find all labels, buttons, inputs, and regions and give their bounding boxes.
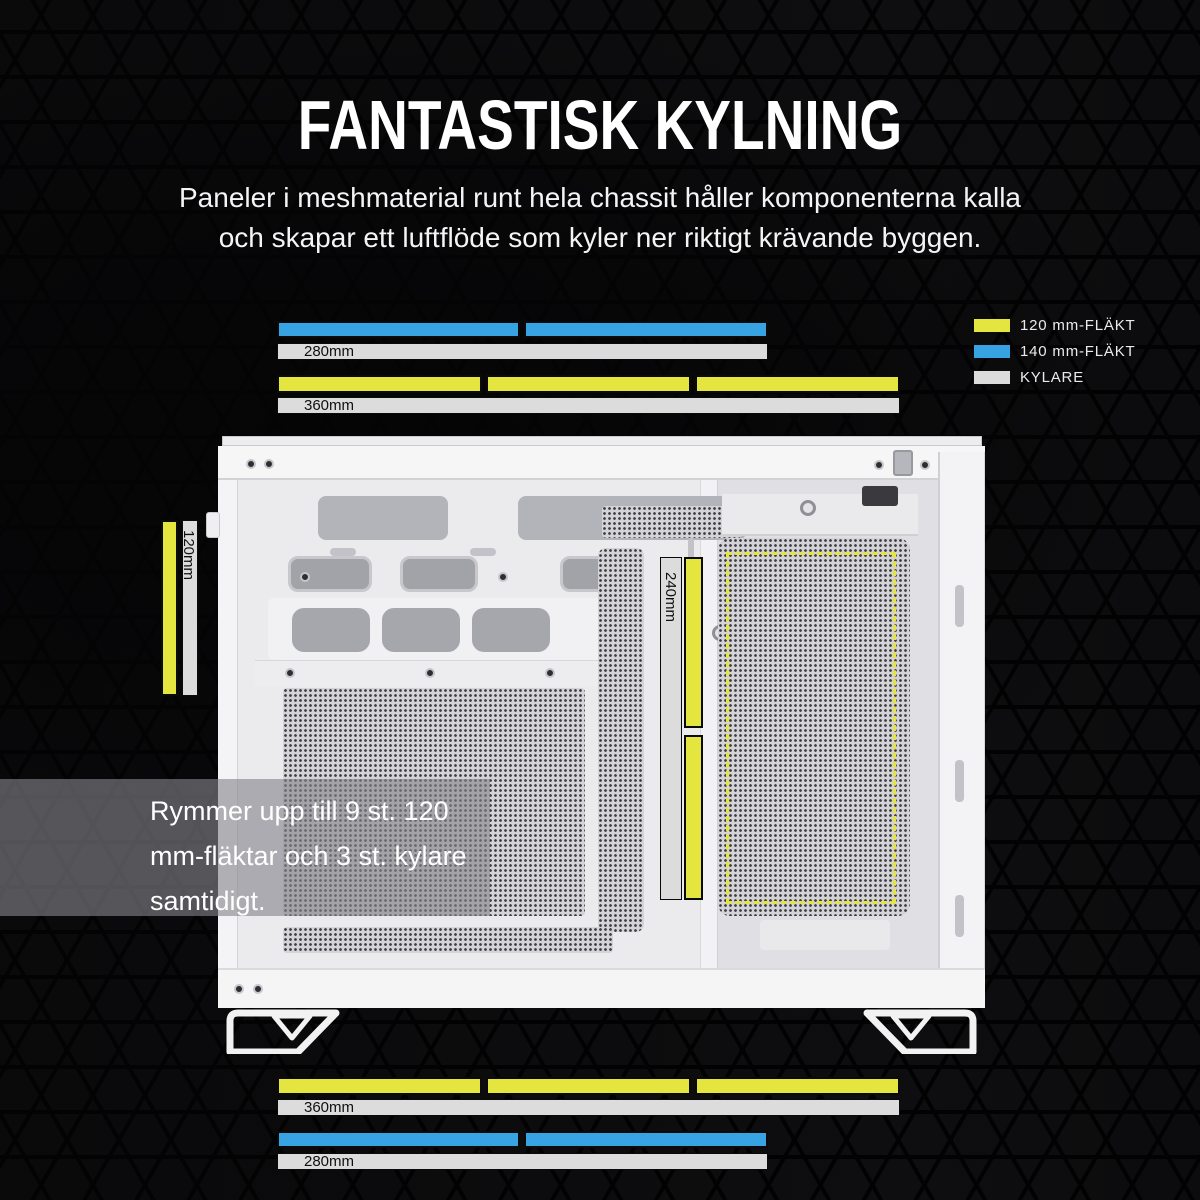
- case-top-frame: [218, 446, 985, 480]
- shroud-cutout: [292, 608, 370, 652]
- fan-120-swatch: [973, 318, 1011, 333]
- fan-120-segment: [277, 375, 482, 393]
- fan-140-segment: [524, 1131, 768, 1148]
- page-title: FANTASTISK KYLNING: [84, 85, 1116, 165]
- fan-120-segment: [695, 375, 900, 393]
- mount-slot: [470, 548, 496, 556]
- legend-row-cooler: KYLARE: [973, 364, 1135, 390]
- legend: 120 mm-FLÄKT 140 mm-FLÄKT KYLARE: [973, 312, 1135, 390]
- screw-icon: [498, 572, 508, 582]
- legend-label: 120 mm-FLÄKT: [1020, 317, 1135, 334]
- bottom-fan120-bar: [277, 1077, 900, 1095]
- panel-slot: [955, 895, 964, 937]
- legend-row-140mm-fan: 140 mm-FLÄKT: [973, 338, 1135, 364]
- screw-icon: [234, 984, 244, 994]
- fan-140-swatch: [973, 344, 1011, 359]
- shroud-cutout: [382, 608, 460, 652]
- screw-icon: [253, 984, 263, 994]
- shroud-cutout: [472, 608, 550, 652]
- fan-120-segment: [277, 1077, 482, 1095]
- callout-line: Rymmer upp till 9 st. 120: [150, 789, 495, 834]
- callout-line: samtidigt.: [150, 879, 495, 924]
- left-fan-120-bar: [161, 520, 178, 696]
- screw-icon: [425, 668, 435, 678]
- case-latch: [893, 450, 913, 476]
- fan-140-segment: [524, 321, 768, 338]
- legend-row-120mm-fan: 120 mm-FLÄKT: [973, 312, 1135, 338]
- top-cooler-280-bar: 280mm: [277, 343, 768, 360]
- fan-140-segment: [277, 1131, 520, 1148]
- mesh-vent-strip: [598, 548, 644, 932]
- fan-120-segment: [695, 1077, 900, 1095]
- rear-connector: [862, 486, 898, 506]
- mount-slot: [330, 548, 356, 556]
- panel-slot: [955, 585, 964, 627]
- top-fan140-bar: [277, 321, 768, 338]
- case-top-lid: [222, 436, 982, 446]
- internal-fan-120-segment: [684, 557, 703, 728]
- page-subtitle: Paneler i meshmaterial runt hela chassit…: [60, 178, 1140, 258]
- case-foot-left: [222, 1006, 340, 1054]
- mesh-vent: [602, 506, 742, 538]
- screw-icon: [300, 572, 310, 582]
- top-fan120-bar: [277, 375, 900, 393]
- screw-icon: [264, 459, 274, 469]
- thumbscrew-icon: [800, 500, 816, 516]
- cable-cutout: [318, 496, 448, 540]
- subtitle-line: och skapar ett luftflöde som kyler ner r…: [60, 218, 1140, 258]
- grommet: [400, 556, 478, 592]
- cooler-swatch: [973, 370, 1011, 385]
- callout-text: Rymmer upp till 9 st. 120 mm-fläktar och…: [150, 789, 495, 924]
- bottom-cooler-360-bar: 360mm: [277, 1099, 900, 1116]
- case-foot-right: [863, 1006, 981, 1054]
- screw-icon: [874, 460, 884, 470]
- case-base: [218, 968, 985, 1008]
- bottom-cooler-280-bar: 280mm: [277, 1153, 768, 1170]
- screw-icon: [246, 459, 256, 469]
- mesh-vent-bottom: [283, 927, 613, 953]
- fan-mount-outline: [726, 552, 896, 904]
- fan-120-segment: [486, 375, 691, 393]
- legend-label: KYLARE: [1020, 369, 1084, 386]
- bottom-fan140-bar: [277, 1131, 768, 1148]
- panel-slot: [955, 760, 964, 802]
- internal-fan-120-segment: [684, 735, 703, 900]
- fan-140-segment: [277, 321, 520, 338]
- left-cooler-label: 120mm: [181, 530, 196, 580]
- screw-icon: [920, 460, 930, 470]
- callout-panel: Rymmer upp till 9 st. 120 mm-fläktar och…: [0, 779, 490, 916]
- callout-line: mm-fläktar och 3 st. kylare: [150, 834, 495, 879]
- fan-120-segment: [486, 1077, 691, 1095]
- legend-label: 140 mm-FLÄKT: [1020, 343, 1135, 360]
- screw-icon: [545, 668, 555, 678]
- screw-icon: [285, 668, 295, 678]
- top-cooler-360-bar: 360mm: [277, 397, 900, 414]
- internal-cooler-label: 240mm: [663, 572, 678, 622]
- psu-bracket: [760, 920, 890, 950]
- subtitle-line: Paneler i meshmaterial runt hela chassit…: [60, 178, 1140, 218]
- infographic-canvas: FANTASTISK KYLNING Paneler i meshmateria…: [0, 0, 1200, 1200]
- case-side-clip: [206, 512, 220, 538]
